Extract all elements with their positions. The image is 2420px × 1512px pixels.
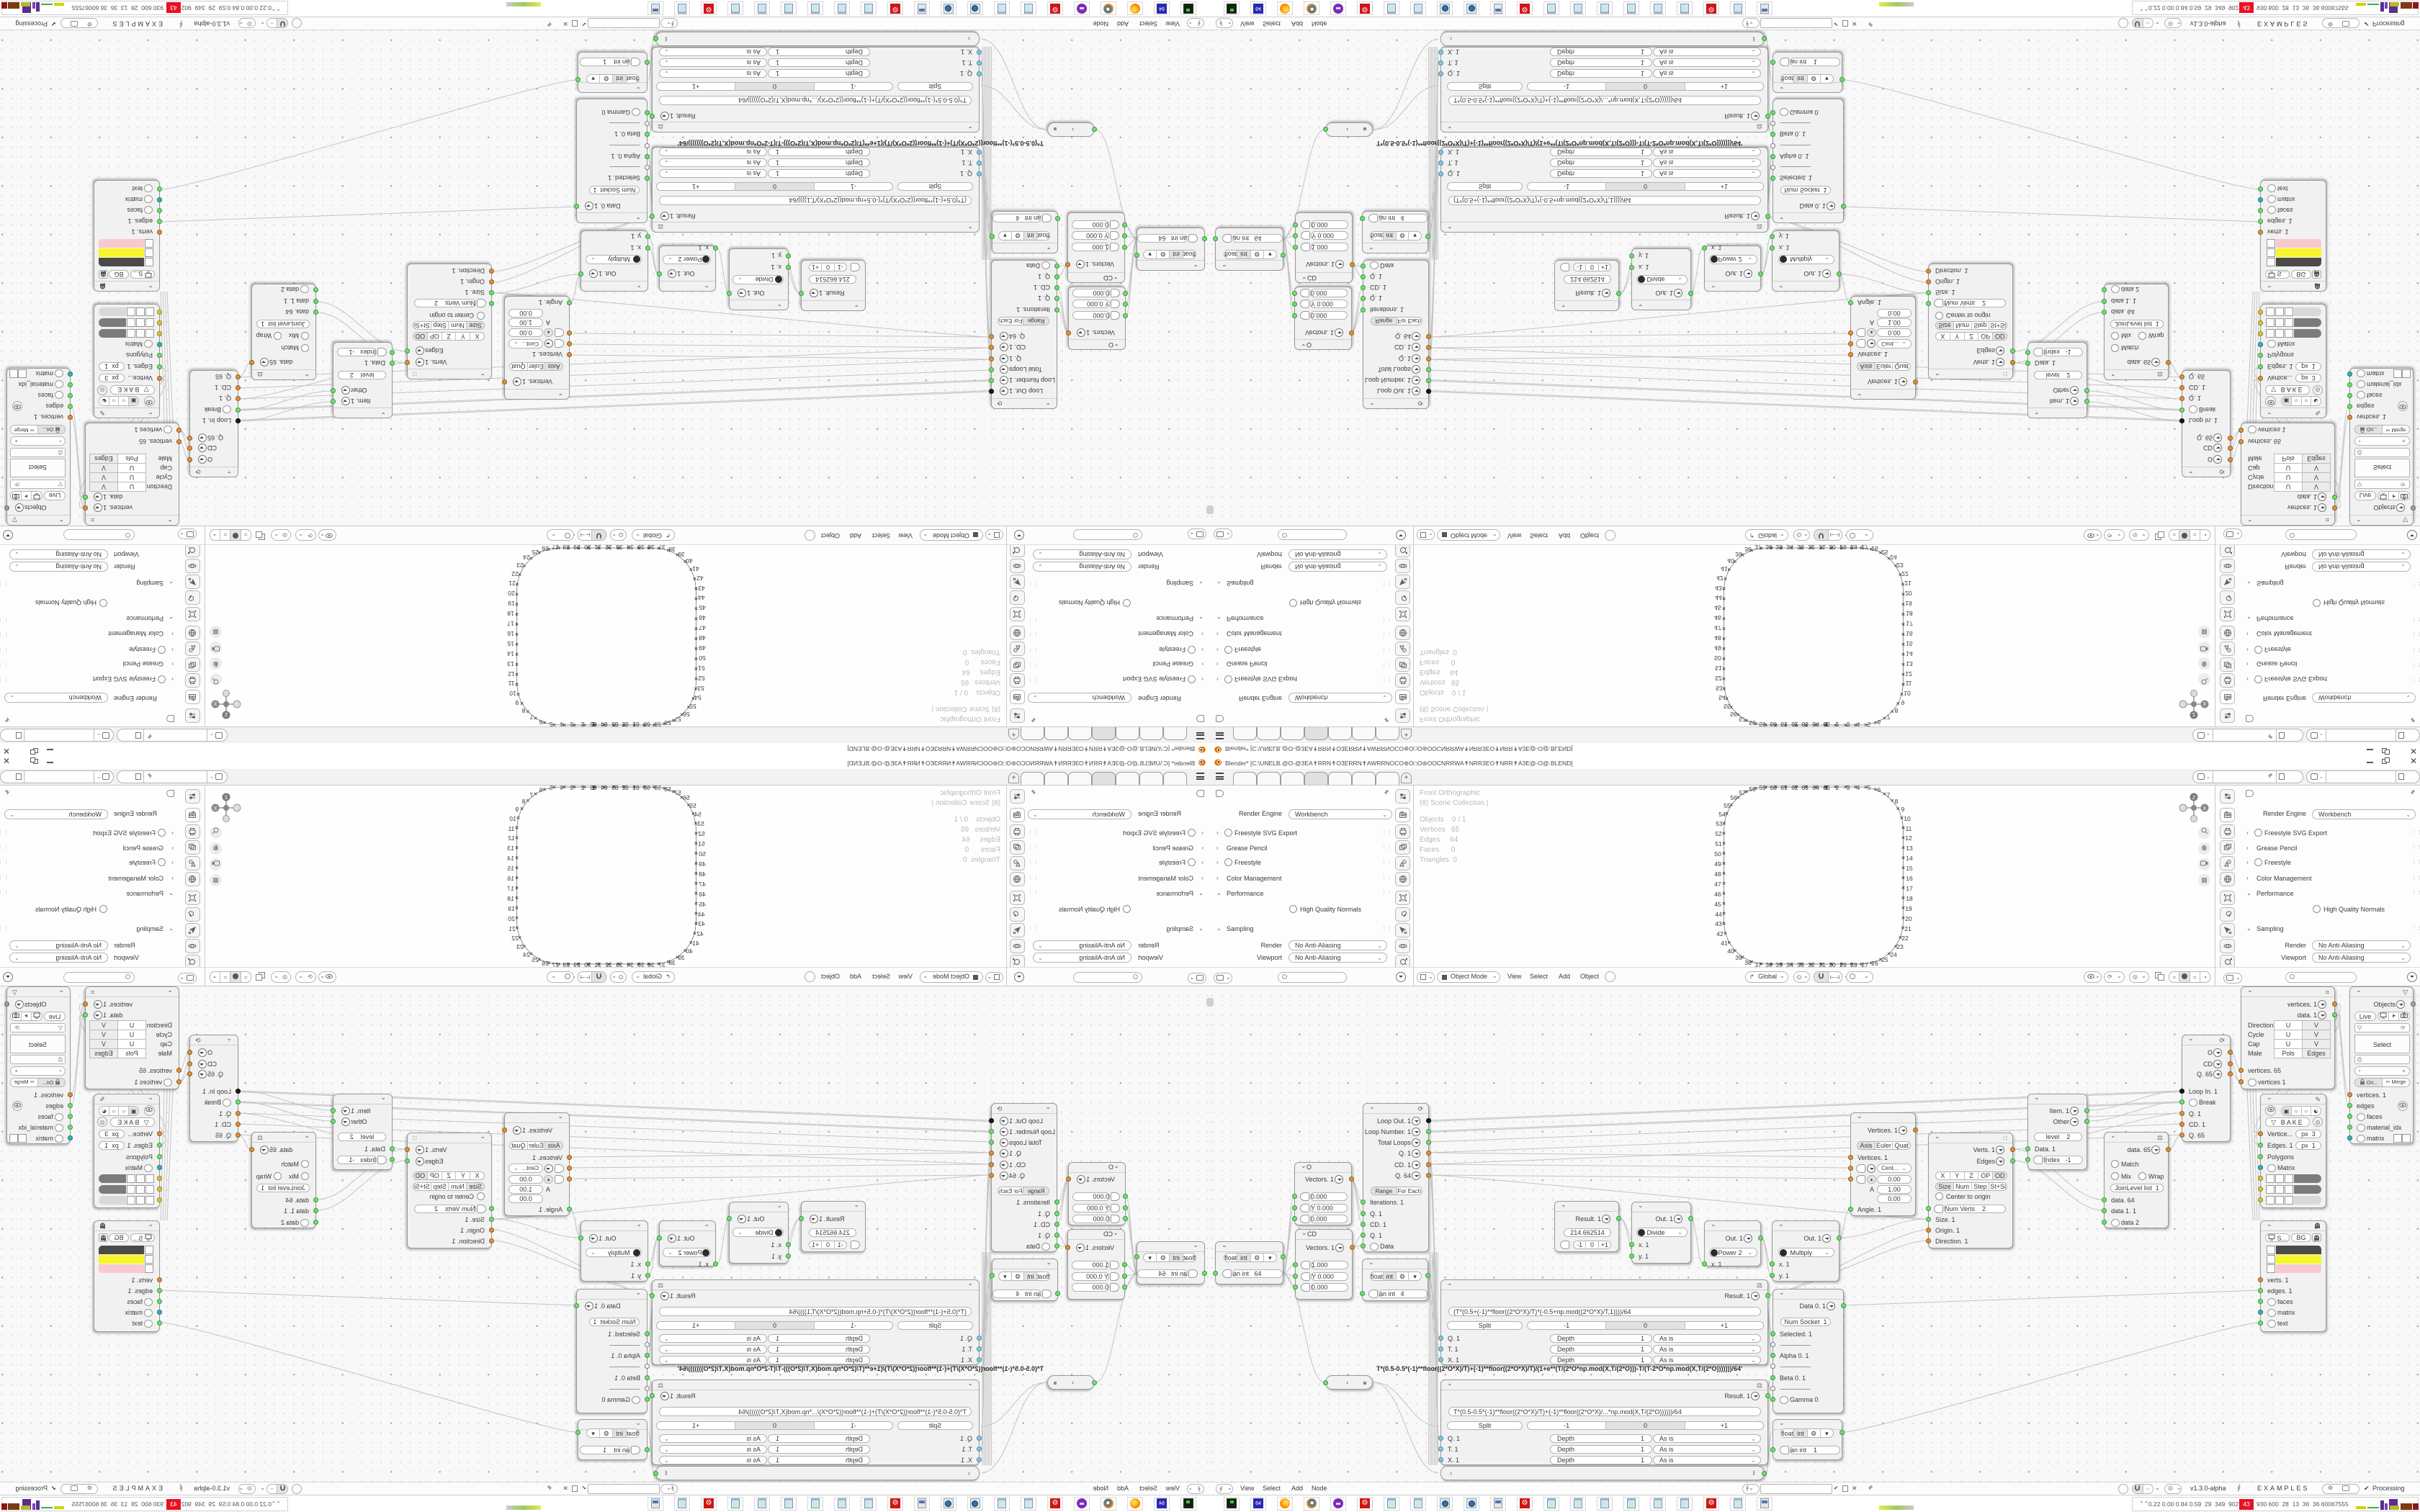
svg-text:56: 56 bbox=[1730, 711, 1737, 718]
svg-text:57: 57 bbox=[1739, 716, 1746, 723]
svg-text:10: 10 bbox=[1904, 815, 1911, 822]
svg-text:3: 3 bbox=[570, 786, 573, 791]
svg-text:48: 48 bbox=[1714, 870, 1721, 878]
svg-text:65: 65 bbox=[1823, 721, 1830, 726]
svg-text:55: 55 bbox=[689, 703, 696, 710]
svg-text:40: 40 bbox=[686, 948, 693, 955]
svg-text:57: 57 bbox=[674, 789, 681, 796]
svg-text:62: 62 bbox=[622, 721, 629, 726]
svg-text:16: 16 bbox=[507, 875, 514, 882]
svg-text:13: 13 bbox=[1906, 660, 1913, 667]
svg-text:64: 64 bbox=[1812, 786, 1819, 791]
svg-text:X: X bbox=[213, 701, 217, 706]
svg-text:46: 46 bbox=[1714, 614, 1721, 621]
svg-text:8: 8 bbox=[521, 798, 525, 805]
svg-text:7: 7 bbox=[1887, 714, 1891, 721]
svg-text:41: 41 bbox=[1721, 940, 1728, 947]
svg-text:55: 55 bbox=[689, 802, 696, 809]
svg-text:14: 14 bbox=[507, 855, 514, 862]
svg-text:5: 5 bbox=[1868, 721, 1871, 726]
svg-text:38: 38 bbox=[668, 546, 676, 553]
svg-text:16: 16 bbox=[507, 630, 514, 637]
svg-text:45: 45 bbox=[699, 604, 706, 611]
svg-text:7: 7 bbox=[529, 791, 533, 798]
svg-text:18: 18 bbox=[1906, 610, 1913, 617]
svg-text:20: 20 bbox=[1905, 590, 1912, 597]
svg-text:25: 25 bbox=[532, 549, 539, 556]
svg-text:52: 52 bbox=[698, 830, 705, 837]
svg-text:47: 47 bbox=[699, 624, 706, 631]
svg-text:38: 38 bbox=[1744, 959, 1752, 966]
svg-text:52: 52 bbox=[1715, 675, 1722, 682]
svg-text:59: 59 bbox=[654, 721, 661, 726]
svg-text:63: 63 bbox=[1801, 786, 1809, 791]
svg-text:8: 8 bbox=[1895, 707, 1899, 714]
svg-text:60: 60 bbox=[643, 786, 650, 791]
svg-text:54: 54 bbox=[1718, 811, 1726, 818]
svg-text:38: 38 bbox=[1744, 546, 1752, 553]
svg-text:23: 23 bbox=[516, 562, 524, 569]
svg-text:56: 56 bbox=[683, 794, 690, 801]
svg-text:24: 24 bbox=[523, 554, 530, 561]
svg-text:17: 17 bbox=[507, 885, 514, 892]
svg-text:25: 25 bbox=[1881, 549, 1888, 556]
svg-text:61: 61 bbox=[632, 786, 640, 791]
svg-text:X: X bbox=[213, 806, 217, 811]
svg-text:59: 59 bbox=[1759, 786, 1766, 791]
svg-text:6: 6 bbox=[1878, 786, 1881, 793]
svg-text:26: 26 bbox=[542, 960, 549, 967]
svg-text:65: 65 bbox=[1823, 786, 1830, 791]
svg-text:17: 17 bbox=[507, 620, 514, 627]
svg-text:51: 51 bbox=[698, 840, 705, 847]
svg-text:14: 14 bbox=[507, 650, 514, 657]
svg-text:57: 57 bbox=[1739, 789, 1746, 796]
svg-text:42: 42 bbox=[1716, 930, 1724, 937]
svg-text:8: 8 bbox=[521, 707, 525, 714]
svg-text:Z: Z bbox=[224, 796, 228, 801]
svg-text:12: 12 bbox=[1905, 834, 1912, 842]
svg-text:56: 56 bbox=[683, 711, 690, 718]
svg-text:4: 4 bbox=[560, 721, 563, 726]
svg-text:39: 39 bbox=[1735, 954, 1742, 961]
svg-text:9: 9 bbox=[515, 806, 519, 813]
svg-text:20: 20 bbox=[508, 590, 515, 597]
svg-text:23: 23 bbox=[1896, 562, 1904, 569]
svg-text:53: 53 bbox=[697, 685, 704, 692]
svg-text:2: 2 bbox=[581, 786, 584, 791]
svg-text:39: 39 bbox=[678, 551, 685, 558]
svg-text:4: 4 bbox=[1857, 721, 1860, 726]
svg-text:48: 48 bbox=[1714, 634, 1721, 642]
svg-text:48: 48 bbox=[699, 634, 706, 642]
svg-text:22: 22 bbox=[511, 570, 519, 577]
svg-text:10: 10 bbox=[509, 690, 516, 697]
svg-text:13: 13 bbox=[1906, 845, 1913, 852]
svg-text:64: 64 bbox=[601, 721, 608, 726]
svg-text:44: 44 bbox=[698, 594, 705, 601]
svg-text:46: 46 bbox=[1714, 891, 1721, 898]
svg-text:65: 65 bbox=[590, 786, 597, 791]
svg-text:51: 51 bbox=[698, 665, 705, 672]
svg-text:38: 38 bbox=[668, 959, 676, 966]
svg-text:X: X bbox=[2203, 806, 2207, 811]
svg-text:46: 46 bbox=[699, 891, 706, 898]
svg-text:54: 54 bbox=[694, 694, 702, 701]
svg-text:60: 60 bbox=[643, 721, 650, 726]
svg-text:45: 45 bbox=[1714, 604, 1721, 611]
svg-text:46: 46 bbox=[699, 614, 706, 621]
svg-text:52: 52 bbox=[698, 675, 705, 682]
svg-text:9: 9 bbox=[1901, 699, 1905, 706]
svg-text:52: 52 bbox=[1715, 830, 1722, 837]
svg-text:60: 60 bbox=[1770, 786, 1777, 791]
svg-text:57: 57 bbox=[674, 716, 681, 723]
svg-text:62: 62 bbox=[622, 786, 629, 791]
svg-text:11: 11 bbox=[508, 680, 514, 687]
svg-text:21: 21 bbox=[508, 580, 516, 587]
svg-text:61: 61 bbox=[632, 721, 640, 726]
svg-text:21: 21 bbox=[1904, 580, 1912, 587]
svg-text:18: 18 bbox=[507, 895, 514, 902]
svg-text:20: 20 bbox=[508, 915, 515, 922]
svg-text:21: 21 bbox=[508, 925, 516, 932]
svg-text:22: 22 bbox=[1901, 935, 1909, 942]
svg-text:64: 64 bbox=[1812, 721, 1819, 726]
svg-text:2: 2 bbox=[1836, 786, 1839, 791]
svg-text:60: 60 bbox=[1770, 721, 1777, 726]
svg-text:39: 39 bbox=[1735, 551, 1742, 558]
svg-text:10: 10 bbox=[1904, 690, 1911, 697]
svg-text:11: 11 bbox=[508, 825, 514, 832]
svg-text:58: 58 bbox=[664, 719, 671, 726]
svg-text:5: 5 bbox=[549, 786, 552, 791]
svg-text:41: 41 bbox=[692, 940, 699, 947]
svg-text:Z: Z bbox=[224, 711, 228, 716]
svg-text:44: 44 bbox=[698, 911, 705, 918]
svg-text:43: 43 bbox=[698, 585, 705, 592]
svg-text:42: 42 bbox=[696, 575, 704, 582]
svg-text:17: 17 bbox=[1906, 885, 1913, 892]
svg-text:6: 6 bbox=[539, 719, 542, 726]
svg-text:40: 40 bbox=[1727, 557, 1734, 564]
svg-text:5: 5 bbox=[1868, 786, 1871, 791]
svg-text:X: X bbox=[2203, 701, 2207, 706]
svg-text:24: 24 bbox=[523, 951, 530, 958]
svg-text:42: 42 bbox=[696, 930, 704, 937]
svg-text:58: 58 bbox=[664, 786, 671, 793]
svg-text:12: 12 bbox=[508, 834, 515, 842]
svg-text:40: 40 bbox=[686, 557, 693, 564]
svg-text:12: 12 bbox=[508, 670, 515, 678]
svg-text:26: 26 bbox=[542, 545, 549, 552]
svg-text:9: 9 bbox=[1901, 806, 1905, 813]
svg-text:50: 50 bbox=[699, 850, 706, 858]
svg-text:59: 59 bbox=[654, 786, 661, 791]
svg-text:26: 26 bbox=[1871, 545, 1878, 552]
svg-text:14: 14 bbox=[1906, 650, 1913, 657]
svg-text:49: 49 bbox=[1714, 644, 1721, 652]
svg-text:20: 20 bbox=[1905, 915, 1912, 922]
svg-text:19: 19 bbox=[508, 905, 515, 912]
svg-text:25: 25 bbox=[532, 956, 539, 963]
svg-text:61: 61 bbox=[1780, 721, 1788, 726]
svg-text:19: 19 bbox=[1905, 905, 1912, 912]
svg-text:21: 21 bbox=[1904, 925, 1912, 932]
svg-text:15: 15 bbox=[507, 865, 514, 872]
svg-text:51: 51 bbox=[1715, 665, 1722, 672]
svg-text:44: 44 bbox=[1715, 594, 1722, 601]
svg-text:59: 59 bbox=[1759, 721, 1766, 726]
svg-text:48: 48 bbox=[699, 870, 706, 878]
svg-text:44: 44 bbox=[1715, 911, 1722, 918]
svg-text:15: 15 bbox=[1906, 640, 1913, 647]
svg-text:55: 55 bbox=[1724, 802, 1731, 809]
svg-text:16: 16 bbox=[1906, 875, 1913, 882]
svg-text:50: 50 bbox=[1714, 850, 1721, 858]
svg-text:15: 15 bbox=[1906, 865, 1913, 872]
svg-text:47: 47 bbox=[1714, 624, 1721, 631]
svg-text:18: 18 bbox=[507, 610, 514, 617]
svg-text:4: 4 bbox=[1857, 786, 1860, 791]
svg-text:8: 8 bbox=[1895, 798, 1899, 805]
svg-text:17: 17 bbox=[1906, 620, 1913, 627]
svg-text:16: 16 bbox=[1906, 630, 1913, 637]
svg-text:64: 64 bbox=[601, 786, 608, 791]
svg-text:63: 63 bbox=[1801, 721, 1809, 726]
svg-text:2: 2 bbox=[1836, 721, 1839, 726]
svg-text:50: 50 bbox=[1714, 654, 1721, 662]
svg-text:39: 39 bbox=[678, 954, 685, 961]
svg-text:22: 22 bbox=[511, 935, 519, 942]
svg-text:Z: Z bbox=[2192, 711, 2196, 716]
svg-text:47: 47 bbox=[699, 881, 706, 888]
svg-text:6: 6 bbox=[539, 786, 542, 793]
svg-text:50: 50 bbox=[699, 654, 706, 662]
svg-text:63: 63 bbox=[611, 721, 619, 726]
svg-text:58: 58 bbox=[1749, 786, 1756, 793]
svg-text:11: 11 bbox=[1906, 680, 1912, 687]
svg-text:3: 3 bbox=[1847, 721, 1850, 726]
svg-text:14: 14 bbox=[1906, 855, 1913, 862]
svg-text:12: 12 bbox=[1905, 670, 1912, 678]
svg-text:24: 24 bbox=[1890, 554, 1897, 561]
svg-text:40: 40 bbox=[1727, 948, 1734, 955]
svg-text:43: 43 bbox=[698, 920, 705, 927]
svg-text:18: 18 bbox=[1906, 895, 1913, 902]
svg-text:43: 43 bbox=[1715, 920, 1722, 927]
svg-text:25: 25 bbox=[1881, 956, 1888, 963]
svg-text:23: 23 bbox=[1896, 943, 1904, 950]
svg-text:47: 47 bbox=[1714, 881, 1721, 888]
svg-text:55: 55 bbox=[1724, 703, 1731, 710]
svg-text:58: 58 bbox=[1749, 719, 1756, 726]
svg-text:3: 3 bbox=[570, 721, 573, 726]
svg-text:26: 26 bbox=[1871, 960, 1878, 967]
svg-text:62: 62 bbox=[1791, 721, 1798, 726]
svg-text:51: 51 bbox=[1715, 840, 1722, 847]
svg-text:54: 54 bbox=[694, 811, 702, 818]
svg-text:45: 45 bbox=[1714, 901, 1721, 908]
svg-text:61: 61 bbox=[1780, 786, 1788, 791]
svg-text:43: 43 bbox=[1715, 585, 1722, 592]
svg-text:53: 53 bbox=[697, 820, 704, 827]
svg-text:9: 9 bbox=[515, 699, 519, 706]
svg-text:56: 56 bbox=[1730, 794, 1737, 801]
svg-text:42: 42 bbox=[1716, 575, 1724, 582]
svg-text:11: 11 bbox=[1906, 825, 1912, 832]
svg-text:45: 45 bbox=[699, 901, 706, 908]
svg-text:7: 7 bbox=[529, 714, 533, 721]
svg-text:Z: Z bbox=[2192, 796, 2196, 801]
svg-text:2: 2 bbox=[581, 721, 584, 726]
svg-text:15: 15 bbox=[507, 640, 514, 647]
svg-text:41: 41 bbox=[1721, 565, 1728, 572]
svg-text:19: 19 bbox=[1905, 600, 1912, 607]
svg-text:62: 62 bbox=[1791, 786, 1798, 791]
svg-text:53: 53 bbox=[1716, 685, 1723, 692]
svg-text:23: 23 bbox=[516, 943, 524, 950]
svg-text:5: 5 bbox=[549, 721, 552, 726]
svg-text:22: 22 bbox=[1901, 570, 1909, 577]
svg-text:49: 49 bbox=[699, 860, 706, 868]
svg-text:63: 63 bbox=[611, 786, 619, 791]
svg-text:24: 24 bbox=[1890, 951, 1897, 958]
svg-text:19: 19 bbox=[508, 600, 515, 607]
svg-text:65: 65 bbox=[590, 721, 597, 726]
svg-text:6: 6 bbox=[1878, 719, 1881, 726]
svg-text:53: 53 bbox=[1716, 820, 1723, 827]
svg-text:41: 41 bbox=[692, 565, 699, 572]
svg-text:10: 10 bbox=[509, 815, 516, 822]
svg-text:49: 49 bbox=[1714, 860, 1721, 868]
svg-text:4: 4 bbox=[560, 786, 563, 791]
svg-text:3: 3 bbox=[1847, 786, 1850, 791]
svg-text:54: 54 bbox=[1718, 694, 1726, 701]
svg-text:49: 49 bbox=[699, 644, 706, 652]
svg-text:13: 13 bbox=[507, 845, 514, 852]
svg-text:7: 7 bbox=[1887, 791, 1891, 798]
svg-text:13: 13 bbox=[507, 660, 514, 667]
